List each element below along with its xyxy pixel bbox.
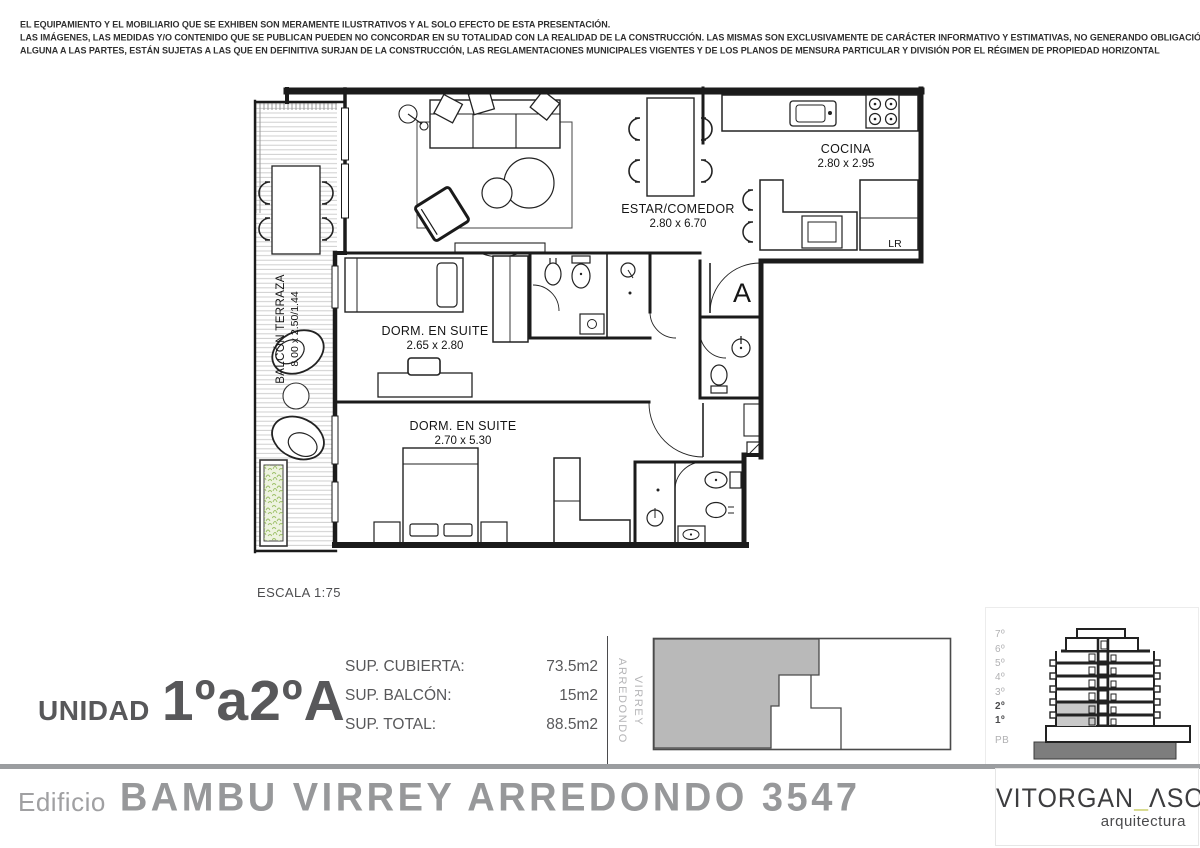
label-bedroom2: DORM. EN SUITE — [410, 419, 517, 433]
kitchen-sink — [790, 101, 836, 126]
floor-plan: ESTAR/COMEDOR 2.80 x 6.70 COCINA 2.80 x … — [250, 86, 930, 570]
unit-block: UNIDAD 1ºa2ºA — [38, 668, 346, 734]
toilet-1 — [572, 256, 590, 288]
desk — [378, 358, 472, 397]
bathroom-2 — [647, 462, 741, 544]
disclaimer-line-1: EL EQUIPAMIENTO Y EL MOBILIARIO QUE SE E… — [20, 18, 1190, 32]
floor-label-6: 6º — [995, 644, 1005, 655]
hall-door-arc — [650, 312, 676, 338]
logo-name-part2: ΛSOC — [1149, 783, 1200, 813]
stove — [866, 95, 899, 128]
sink-2 — [678, 526, 705, 543]
disclaimer-line-3: ALGUNA A LAS PARTES, ESTÁN SUJETAS A LAS… — [20, 44, 1190, 58]
elevation-panel: 7º 6º 5º 4º 3º 2º 1º PB — [985, 607, 1199, 767]
dining-table — [629, 98, 712, 196]
floor-label-4: 4º — [995, 672, 1005, 683]
shower-1 — [621, 263, 635, 295]
presentation-sheet: EL EQUIPAMIENTO Y EL MOBILIARIO QUE SE E… — [0, 0, 1200, 848]
door-arc — [700, 332, 726, 358]
powder-sink — [732, 336, 750, 357]
surface-label: SUP. BALCÓN: — [345, 681, 452, 710]
label-balcony-dims: 8.00 x 2.50/1.44 — [289, 291, 301, 366]
building-elevation — [1020, 612, 1192, 762]
unit-label: UNIDAD — [38, 695, 150, 727]
surface-label: SUP. TOTAL: — [345, 710, 436, 739]
bidet-1 — [545, 258, 561, 285]
surface-value: 15m2 — [559, 681, 598, 710]
label-bedroom1: DORM. EN SUITE — [382, 324, 489, 338]
label-kitchen-dims: 2.80 x 2.95 — [818, 158, 875, 170]
bedroom-2-furniture — [374, 448, 630, 546]
floor-lamp — [399, 105, 428, 130]
unit-number: 1ºa2ºA — [162, 668, 346, 734]
label-living-dims: 2.80 x 6.70 — [650, 218, 707, 230]
building-prefix: Edificio — [18, 787, 106, 818]
label-balcony: BALCÓN TERRAZA — [274, 274, 287, 384]
label-bedroom1-dims: 2.65 x 2.80 — [407, 340, 464, 352]
sink-1 — [580, 314, 604, 334]
logo-name-part1: VITORGAN — [996, 783, 1134, 813]
surface-value: 73.5m2 — [546, 652, 598, 681]
laundry-label: LR — [888, 238, 902, 250]
vertical-divider — [607, 636, 608, 768]
surface-value: 88.5m2 — [546, 710, 598, 739]
footer-title: Edificio BAMBU VIRREY ARREDONDO 3547 — [18, 778, 860, 821]
label-bedroom2-dims: 2.70 x 5.30 — [435, 435, 492, 447]
logo-underscore: _ — [1134, 783, 1149, 813]
shower-2 — [647, 489, 663, 527]
planter — [260, 460, 287, 546]
logo-name: VITORGAN_ΛSOC — [996, 783, 1198, 814]
architect-logo: VITORGAN_ΛSOC arquitectura — [995, 768, 1199, 846]
powder-toilet — [711, 365, 727, 393]
surface-label: SUP. CUBIERTA: — [345, 652, 465, 681]
bathroom-1 — [533, 253, 635, 338]
bidet-2 — [706, 503, 734, 518]
shaft — [744, 404, 761, 456]
street-name-vertical: VIRREY ARREDONDO — [612, 621, 646, 781]
surface-table: SUP. CUBIERTA: 73.5m2 SUP. BALCÓN: 15m2 … — [345, 652, 598, 739]
floor-label-pb: PB — [995, 735, 1009, 746]
floor-label-7: 7º — [995, 629, 1005, 640]
coffee-table — [504, 158, 554, 208]
label-living: ESTAR/COMEDOR — [621, 202, 734, 216]
door-arc — [675, 462, 703, 490]
entrance-marker: A — [733, 278, 751, 308]
street-line-1: VIRREY — [630, 621, 646, 781]
disclaimer-line-2: LAS IMÁGENES, LAS MEDIDAS Y/O CONTENIDO … — [20, 31, 1190, 45]
living-room-furniture — [399, 89, 572, 257]
disclaimer-block: EL EQUIPAMIENTO Y EL MOBILIARIO QUE SE E… — [20, 18, 1190, 58]
label-kitchen: COCINA — [821, 142, 872, 156]
surface-row-covered: SUP. CUBIERTA: 73.5m2 — [345, 652, 598, 681]
floor-label-2: 2º — [995, 701, 1005, 712]
floor-label-1: 1º — [995, 715, 1005, 726]
door-arc — [533, 285, 559, 311]
site-key-plan — [652, 637, 952, 751]
surface-row-total: SUP. TOTAL: 88.5m2 — [345, 710, 598, 739]
floor-label-3: 3º — [995, 687, 1005, 698]
bedroom2-door-arc — [649, 403, 703, 457]
balcony-side-table — [283, 383, 309, 409]
closet-1 — [493, 256, 528, 342]
surface-row-balcony: SUP. BALCÓN: 15m2 — [345, 681, 598, 710]
bed-1 — [345, 258, 463, 312]
logo-tagline: arquitectura — [996, 813, 1186, 830]
floor-label-5: 5º — [995, 658, 1005, 669]
sofa — [430, 89, 560, 148]
armchair — [414, 186, 469, 241]
kitchen — [722, 95, 918, 250]
side-table — [482, 178, 512, 208]
toilet-2 — [705, 472, 741, 488]
street-line-2: ARREDONDO — [614, 621, 630, 781]
powder-room — [700, 332, 750, 393]
scale-label: ESCALA 1:75 — [257, 585, 341, 600]
bed-2 — [403, 448, 478, 544]
building-name: BAMBU VIRREY ARREDONDO 3547 — [120, 776, 861, 821]
